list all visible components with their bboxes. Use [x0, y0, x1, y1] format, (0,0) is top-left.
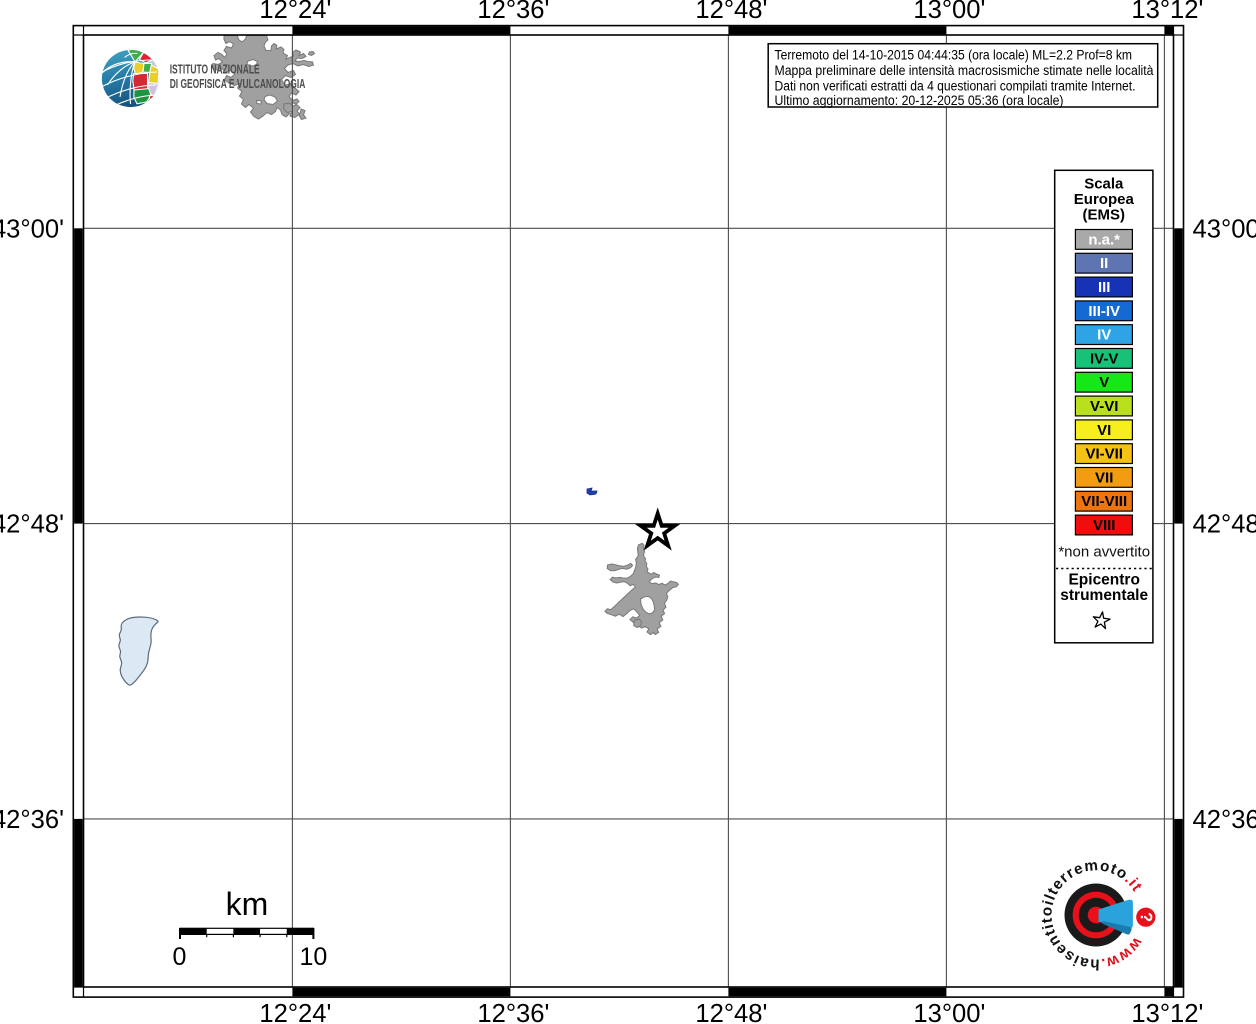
svg-text:13°12': 13°12'	[1131, 0, 1203, 24]
svg-text:Mappa preliminare delle intens: Mappa preliminare delle intensità macros…	[775, 63, 1154, 79]
svg-text:II: II	[1100, 255, 1108, 272]
svg-text:DI GEOFISICA E VULCANOLOGIA: DI GEOFISICA E VULCANOLOGIA	[170, 76, 306, 91]
svg-text:43°00': 43°00'	[0, 215, 64, 243]
svg-text:III-IV: III-IV	[1088, 303, 1120, 320]
svg-text:12°36': 12°36'	[477, 0, 549, 24]
svg-text:(EMS): (EMS)	[1083, 207, 1126, 224]
svg-text:VII-VIII: VII-VIII	[1081, 493, 1127, 510]
svg-text:Scala: Scala	[1084, 175, 1124, 192]
svg-text:V-VI: V-VI	[1090, 398, 1118, 415]
svg-text:12°48': 12°48'	[695, 1000, 767, 1024]
svg-text:42°36': 42°36'	[0, 806, 64, 834]
svg-text:VI-VII: VI-VII	[1085, 446, 1123, 463]
svg-text:Epicentro: Epicentro	[1068, 572, 1139, 589]
svg-text:IV-V: IV-V	[1090, 350, 1118, 367]
svg-text:12°24': 12°24'	[259, 1000, 331, 1024]
svg-text:IV: IV	[1097, 327, 1111, 344]
svg-text:12°24': 12°24'	[259, 0, 331, 24]
svg-text:12°36': 12°36'	[477, 1000, 549, 1024]
svg-text:km: km	[226, 886, 269, 922]
svg-text:Europea: Europea	[1074, 191, 1135, 208]
svg-text:strumentale: strumentale	[1060, 587, 1148, 604]
svg-text:VII: VII	[1095, 469, 1113, 486]
svg-text:*non avvertito: *non avvertito	[1058, 544, 1150, 561]
svg-text:Terremoto del 14-10-2015 04:44: Terremoto del 14-10-2015 04:44:35 (ora l…	[775, 47, 1133, 63]
svg-text:13°00': 13°00'	[913, 0, 985, 24]
svg-text:12°48': 12°48'	[695, 0, 767, 24]
svg-text:Dati non verificati estratti d: Dati non verificati estratti da 4 questi…	[775, 79, 1136, 95]
svg-text:?: ?	[1137, 912, 1155, 923]
svg-text:13°12': 13°12'	[1131, 1000, 1203, 1024]
svg-text:n.a.*: n.a.*	[1088, 231, 1120, 248]
svg-text:III: III	[1098, 279, 1111, 296]
svg-text:Ultimo aggiornamento: 20-12-20: Ultimo aggiornamento: 20-12-2025 05:36 (…	[775, 93, 1064, 109]
svg-text:42°36': 42°36'	[1193, 806, 1256, 834]
svg-text:13°00': 13°00'	[913, 1000, 985, 1024]
svg-text:0: 0	[173, 943, 187, 971]
svg-text:10: 10	[299, 943, 327, 971]
svg-text:43°00': 43°00'	[1193, 215, 1256, 243]
svg-text:VI: VI	[1097, 422, 1111, 439]
svg-text:ISTITUTO NAZIONALE: ISTITUTO NAZIONALE	[170, 62, 260, 77]
svg-text:V: V	[1099, 374, 1109, 391]
svg-text:42°48': 42°48'	[1193, 511, 1256, 539]
svg-text:42°48': 42°48'	[0, 511, 64, 539]
svg-text:VIII: VIII	[1093, 517, 1116, 534]
